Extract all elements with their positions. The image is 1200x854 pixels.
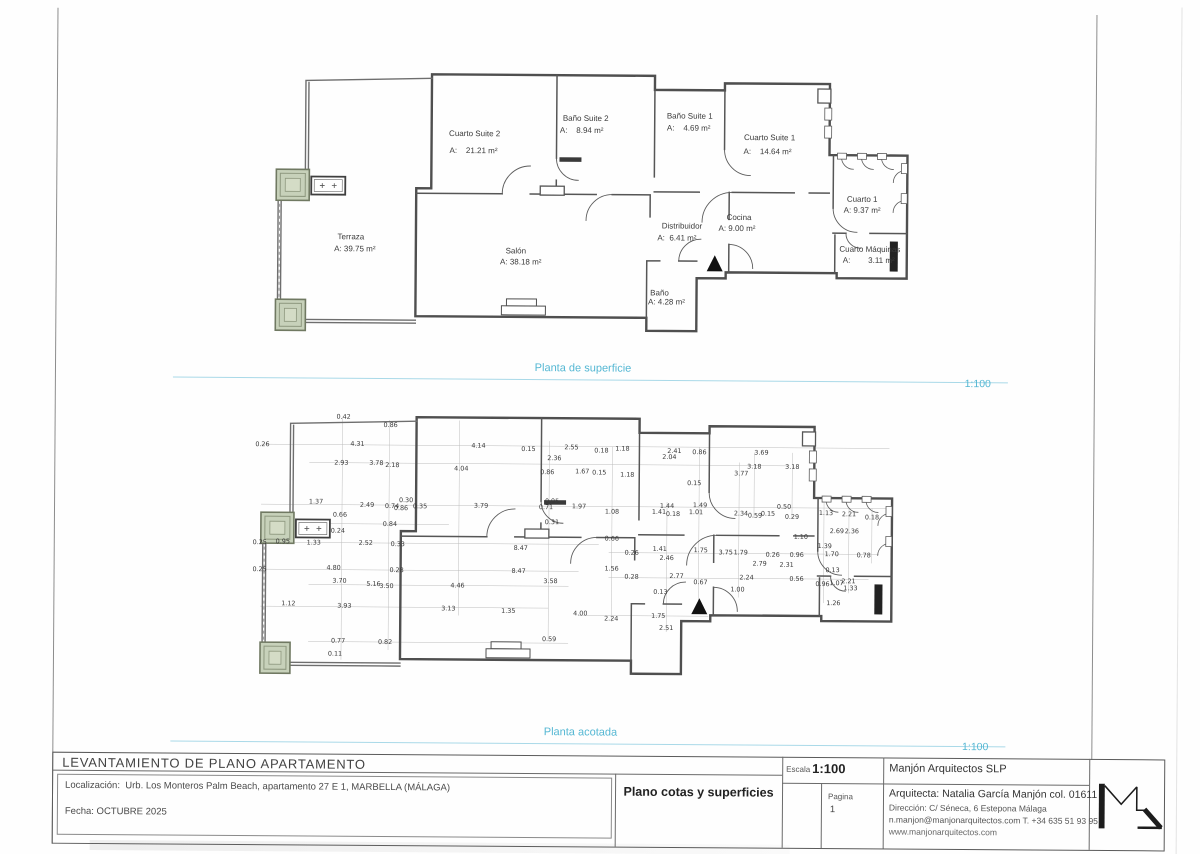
dimension-value: 0.31 (545, 518, 559, 526)
room-area-label: A: 38.18 m² (500, 257, 541, 266)
room-area-label: A: 4.28 m² (648, 297, 685, 306)
dimension-value: 2.55 (564, 443, 578, 451)
dimension-value: 0.50 (777, 503, 791, 511)
dimension-value: 2.77 (669, 572, 683, 580)
dimension-value: 0.95 (545, 497, 559, 505)
dimension-value: 0.35 (413, 502, 427, 510)
dimension-value: 8.47 (514, 544, 528, 552)
room-area-label: A: 3.11 m² (843, 256, 895, 265)
dimension-value: 2.34 (734, 509, 748, 517)
dimension-value: 3.93 (337, 602, 351, 610)
room-area-label: A: 8.94 m² (560, 126, 604, 135)
dimension-value: 0.66 (605, 535, 619, 543)
dimension-value: 0.96 (815, 580, 829, 588)
dimension-value: 0.86 (383, 421, 397, 429)
surface-plan-caption: Planta de superficie (503, 362, 663, 375)
dimension-value: 3.50 (379, 582, 393, 590)
dimensioned-plan-scale: 1:100 (930, 741, 988, 753)
dimension-value: 2.21 (842, 510, 856, 518)
room-area-label: A: 21.21 m² (449, 146, 497, 155)
dimension-value: 1.35 (501, 607, 515, 615)
dimension-value: 3.13 (441, 604, 455, 612)
dimension-value: 0.42 (337, 413, 351, 421)
scale-value: 1:100 (812, 761, 845, 776)
dimension-value: 1.75 (651, 612, 665, 620)
room-area-label: A: 6.41 m² (657, 233, 696, 242)
dimension-value: 1.41 (653, 545, 667, 553)
dimension-value: 0.18 (666, 510, 680, 518)
firm-address: Dirección: C/ Séneca, 6 Estepona Málaga (889, 803, 1047, 814)
dimension-value: 0.84 (383, 520, 397, 528)
dimension-value: 0.86 (394, 504, 408, 512)
dimension-value: 2.51 (659, 624, 673, 632)
dimension-value: 2.49 (360, 501, 374, 509)
dimension-value: 4.00 (573, 609, 587, 617)
dimension-value: 0.15 (761, 510, 775, 518)
dimension-value: 1.79 (734, 548, 748, 556)
dimension-value: 0.96 (790, 551, 804, 559)
surface-caption-rule (173, 377, 1008, 384)
dimensioned-plan-drawing (248, 399, 910, 694)
dimension-value: 3.70 (332, 577, 346, 585)
dimension-value: 4.46 (450, 581, 464, 589)
room-area-label: A: 4.69 m² (667, 123, 711, 132)
dimension-value: 0.77 (331, 637, 345, 645)
frame-left-border (52, 8, 59, 844)
dimension-value: 2.79 (752, 560, 766, 568)
room-name-label: Cuarto Suite 1 (744, 133, 795, 142)
dimension-value: 3.75 (719, 548, 733, 556)
room-name-label: Distribuidor (662, 221, 703, 230)
page-label: Pagina (828, 792, 853, 801)
dimensioned-plan-caption: Planta acotada (500, 726, 660, 739)
dimension-value: 1.00 (730, 585, 744, 593)
dimension-value: 1.12 (281, 599, 295, 607)
dimension-value: 0.15 (521, 445, 535, 453)
dimension-value: 0.18 (594, 446, 608, 454)
dimension-value: 0.11 (328, 650, 342, 658)
dimension-value: 1.08 (605, 508, 619, 516)
dimension-value: 0.26 (766, 551, 780, 559)
scale-label: Escala (786, 765, 810, 774)
architect-name: Arquitecta: Natalia García Manjón col. 0… (889, 788, 1097, 801)
dimension-value: 0.86 (540, 468, 554, 476)
drawing-title: Plano cotas y superficies (615, 785, 782, 800)
room-name-label: Cuarto Máquinas (839, 245, 900, 254)
dimension-value: 0.15 (592, 468, 606, 476)
dimension-value: 2.24 (604, 615, 618, 623)
firm-website: www.manjonarquitectos.com (889, 827, 997, 838)
room-name-label: Salón (506, 246, 527, 255)
dimension-value: 1.70 (825, 550, 839, 558)
dimension-value: 3.18 (785, 463, 799, 471)
dimension-value: 2.24 (739, 573, 753, 581)
dimensioned-caption-rule (170, 741, 1005, 748)
dimension-value: 0.26 (625, 549, 639, 557)
room-name-label: Baño (650, 288, 669, 297)
dimension-value: 0.13 (653, 588, 667, 596)
dimension-value: 2.36 (547, 454, 561, 462)
dimension-value: 3.58 (543, 577, 557, 585)
surface-plan-scale: 1:100 (933, 378, 991, 390)
dimension-value: 0.28 (624, 573, 638, 581)
dimension-value: 1.37 (309, 497, 323, 505)
scanned-floor-plan-sheet: TerrazaA: 39.75 m²Cuarto Suite 2A: 21.21… (0, 0, 1200, 854)
room-area-label: A: 39.75 m² (334, 244, 375, 253)
dimension-value: 0.29 (785, 513, 799, 521)
firm-logo (1095, 773, 1163, 843)
surface-plan-drawing (263, 56, 925, 351)
dimension-value: 4.80 (326, 564, 340, 572)
room-name-label: Cuarto Suite 2 (449, 129, 500, 138)
dimension-value: 2.69 (830, 527, 844, 535)
dimension-value: 0.25 (253, 538, 267, 546)
dimension-value: 2.04 (662, 453, 676, 461)
dimension-value: 1.33 (307, 538, 321, 546)
date-text: Fecha: OCTUBRE 2025 (65, 806, 167, 818)
dimension-value: 3.18 (747, 463, 761, 471)
dimension-value: 0.59 (542, 635, 556, 643)
dimension-value: 2.18 (385, 461, 399, 469)
room-area-label: A: 9.00 m² (718, 224, 755, 233)
dimension-value: 1.13 (819, 509, 833, 517)
room-name-label: Cocina (727, 213, 752, 222)
room-name-label: Terraza (338, 232, 365, 241)
dimension-value: 8.47 (511, 567, 525, 575)
dimension-value: 3.78 (369, 459, 383, 467)
dimension-value: 1.26 (826, 599, 840, 607)
dimensioned-floor-plan: 0.420.860.264.314.140.152.552.933.782.18… (248, 399, 910, 694)
dimension-value: 0.15 (687, 479, 701, 487)
page-number: 1 (830, 804, 835, 815)
title-block: LEVANTAMIENTO DE PLANO APARTAMENTO Local… (1, 0, 1200, 8)
dimension-value: 0.30 (399, 496, 413, 504)
dimension-value: 0.95 (276, 537, 290, 545)
room-area-label: A: 9.37 m² (844, 206, 881, 215)
dimension-value: 0.25 (252, 565, 266, 573)
dimension-value: 0.67 (693, 578, 707, 586)
dimension-value: 1.56 (604, 565, 618, 573)
sheet-title: LEVANTAMIENTO DE PLANO APARTAMENTO (62, 755, 366, 772)
dimension-value: 4.04 (454, 464, 468, 472)
dimension-value: 1.18 (620, 471, 634, 479)
firm-name: Manjón Arquitectos SLP (889, 763, 1006, 776)
dimension-value: 4.31 (350, 440, 364, 448)
dimension-value: 2.31 (779, 561, 793, 569)
drawing-sheet: TerrazaA: 39.75 m²Cuarto Suite 2A: 21.21… (0, 0, 1200, 854)
dimension-value: 1.39 (818, 542, 832, 550)
dimension-value: 1.75 (694, 546, 708, 554)
dimension-value: 2.93 (334, 459, 348, 467)
room-name-label: Baño Suite 1 (667, 111, 713, 120)
dimension-value: 1.18 (615, 445, 629, 453)
room-name-label: Baño Suite 2 (563, 114, 609, 123)
surface-floor-plan: TerrazaA: 39.75 m²Cuarto Suite 2A: 21.21… (263, 56, 925, 351)
dimension-value: 0.86 (692, 448, 706, 456)
dimension-value: 0.26 (255, 440, 269, 448)
room-area-label: A: 14.64 m² (743, 147, 791, 156)
dimension-value: 0.33 (391, 540, 405, 548)
room-name-label: Cuarto 1 (847, 195, 878, 204)
dimension-value: 2.36 (845, 527, 859, 535)
dimension-value: 1.67 (575, 467, 589, 475)
dimension-value: 3.69 (754, 449, 768, 457)
dimension-value: 1.44 (660, 502, 674, 510)
dimension-value: 0.28 (389, 566, 403, 574)
dimension-value: 0.24 (331, 527, 345, 535)
dimension-value: 1.33 (843, 584, 857, 592)
firm-contact: n.manjon@manjonarquitectos.com T. +34 63… (889, 815, 1098, 826)
dimension-value: 0.78 (857, 551, 871, 559)
dimension-value: 4.14 (471, 442, 485, 450)
dimension-value: 3.79 (474, 502, 488, 510)
dimension-value: 1.10 (794, 533, 808, 541)
dimension-value: 1.97 (572, 502, 586, 510)
dimension-value: 3.77 (734, 469, 748, 477)
dimension-value: 2.46 (660, 554, 674, 562)
dimension-value: 0.82 (378, 638, 392, 646)
page-edge-line (1176, 8, 1183, 854)
dimension-value: 0.18 (865, 513, 879, 521)
dimension-value: 2.52 (359, 539, 373, 547)
dimension-value: 0.66 (333, 511, 347, 519)
dimension-value: 1.01 (689, 508, 703, 516)
frame-right-border (1091, 15, 1097, 760)
dimension-value: 0.56 (789, 575, 803, 583)
dimension-value: 0.13 (825, 566, 839, 574)
